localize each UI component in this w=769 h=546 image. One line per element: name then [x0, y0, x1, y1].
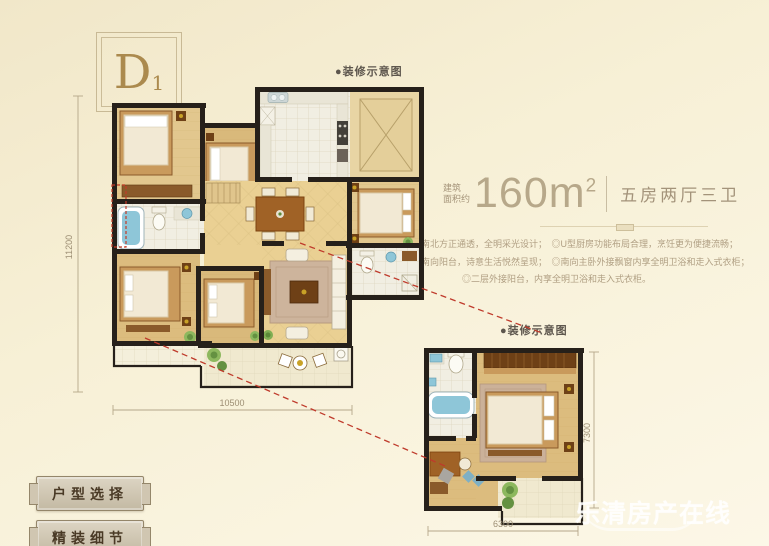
- area-divider: [606, 176, 607, 212]
- detail-floor-plan: [418, 336, 590, 528]
- area-value: 160m2: [474, 172, 597, 215]
- watermark-text: 乐清房产在线: [575, 494, 765, 530]
- dimension-bottom: 10500: [219, 398, 244, 408]
- watermark: 乐清房产在线: [575, 494, 765, 542]
- living-room: [262, 245, 348, 345]
- fine-decor-detail-button[interactable]: 精装细节: [36, 520, 144, 546]
- balcony-side: [114, 345, 204, 367]
- area-prefix-line2: 面积约: [443, 194, 470, 205]
- detail-balcony: [498, 478, 582, 518]
- balcony-main: [204, 345, 350, 387]
- elevator-shaft: [350, 89, 422, 181]
- detail-bathroom: [426, 350, 476, 438]
- bedroom-3: [114, 253, 200, 345]
- main-floor-plan: [110, 85, 425, 395]
- area-info: 建筑 面积约 160m2 五房两厅三卫: [443, 172, 740, 215]
- wardrobe: [484, 352, 576, 374]
- bed-icon: [486, 392, 558, 456]
- area-prefix-line1: 建筑: [443, 183, 470, 194]
- ornament-divider: [540, 226, 708, 227]
- bedroom-1: [114, 105, 204, 203]
- deco-label-top: ●装修示意图: [335, 63, 403, 79]
- floor-plan-select-button[interactable]: 户型选择: [36, 476, 144, 511]
- bedroom-4: [200, 270, 262, 345]
- layout-text: 五房两厅三卫: [620, 181, 740, 206]
- floor-plan-page: D 1 ●装修示意图 ●装修示意图 建筑 面积约 160m2 五房两厅三卫 ◎四…: [0, 0, 769, 546]
- bathroom-2: [350, 247, 422, 297]
- dimension-left: 11200: [64, 235, 74, 259]
- master-bedroom: [350, 181, 422, 247]
- stairs-icon: [206, 183, 240, 203]
- bathroom-1: [114, 203, 204, 253]
- area-prefix: 建筑 面积约: [443, 183, 470, 205]
- watermark-swoosh: [581, 502, 701, 531]
- kitchen: [258, 89, 350, 181]
